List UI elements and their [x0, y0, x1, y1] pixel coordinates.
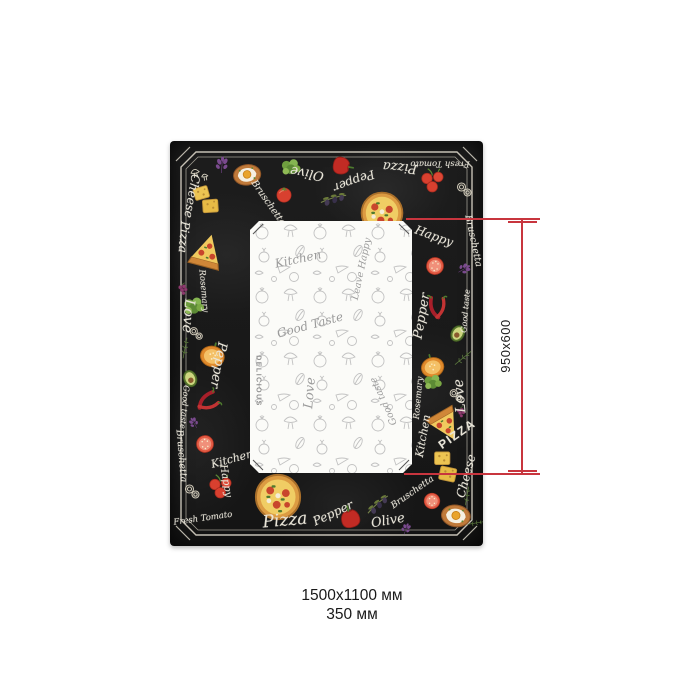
caption-line-overall-size: 1500х1100 мм	[252, 586, 452, 605]
word-love: Love	[180, 298, 197, 333]
tomato-slice-icon	[420, 251, 450, 281]
product-screenshot: OlivePepperPizzaFresh TomatoBruschettaHa…	[0, 0, 700, 700]
dimension-extension-line-top	[406, 218, 540, 220]
word-happy: Happy	[413, 224, 454, 249]
caption: 1500х1100 мм 350 мм	[252, 586, 452, 624]
onion-rings-icon	[454, 179, 474, 199]
tablecloth: OlivePepperPizzaFresh TomatoBruschettaHa…	[170, 141, 483, 546]
dimension-cap-bottom	[508, 470, 537, 472]
tomato-icon	[273, 183, 295, 205]
word-pizza: Pizza	[262, 511, 308, 532]
onion-rings-icon	[182, 481, 202, 501]
rosemary-icon	[450, 345, 475, 370]
dimension-line-vertical	[521, 220, 523, 474]
word-pepper: Pepper	[412, 292, 433, 340]
word-fresh-tomato: Fresh Tomato	[173, 511, 233, 528]
center-panel: KitchenLeave HappyGood TasteDELICIOUSLov…	[250, 221, 412, 473]
word-delicious: DELICIOUS	[255, 355, 262, 407]
dimension-label: 950x600	[495, 310, 515, 382]
word-bruschetta: Bruschetta	[174, 429, 188, 483]
caption-line-border-size: 350 мм	[252, 605, 452, 624]
tomato-slice-icon	[191, 430, 219, 458]
word-pizza: Pizza	[177, 221, 192, 254]
dimension-cap-top	[508, 221, 537, 223]
dimension-extension-line-bottom	[404, 473, 540, 475]
word-rosemary: Rosemary	[197, 269, 209, 312]
word-love: Love	[302, 377, 318, 410]
cherry-tomatoes-icon	[418, 165, 448, 195]
word-fresh-tomato: Fresh Tomato	[410, 159, 469, 168]
word-love: Love	[452, 378, 469, 413]
